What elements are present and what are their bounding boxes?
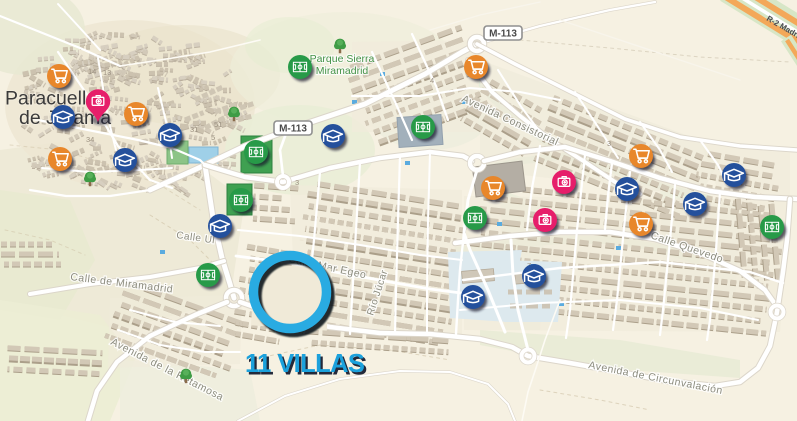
svg-text:51: 51 (214, 120, 222, 129)
svg-text:3: 3 (607, 139, 611, 148)
svg-text:31: 31 (190, 125, 198, 134)
svg-text:Miramadrid: Miramadrid (316, 65, 369, 77)
svg-text:4: 4 (430, 76, 434, 85)
svg-text:14: 14 (88, 67, 96, 76)
svg-text:Parque Sierra: Parque Sierra (310, 53, 375, 65)
svg-text:M-113: M-113 (489, 29, 517, 40)
svg-text:34: 34 (86, 135, 94, 144)
svg-text:13: 13 (103, 68, 111, 77)
svg-text:M-113: M-113 (279, 124, 307, 135)
svg-text:11 VILLAS: 11 VILLAS (245, 350, 365, 378)
svg-text:3: 3 (295, 178, 299, 187)
svg-text:5: 5 (211, 133, 215, 142)
